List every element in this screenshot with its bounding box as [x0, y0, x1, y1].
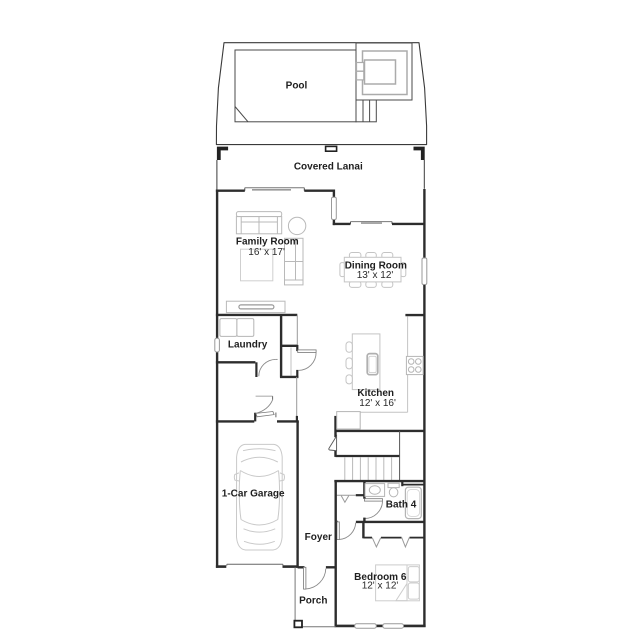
svg-text:1-Car Garage: 1-Car Garage: [222, 488, 285, 499]
svg-text:Porch: Porch: [299, 596, 327, 607]
svg-text:Bath 4: Bath 4: [386, 499, 417, 510]
svg-text:Foyer: Foyer: [305, 532, 332, 543]
svg-text:Covered Lanai: Covered Lanai: [294, 161, 363, 172]
svg-text:16' x 17': 16' x 17': [248, 247, 285, 258]
svg-text:12' x 12': 12' x 12': [362, 581, 399, 592]
svg-text:Laundry: Laundry: [228, 339, 268, 350]
svg-text:12' x 16': 12' x 16': [359, 398, 396, 409]
svg-text:Pool: Pool: [286, 81, 308, 92]
svg-text:13' x 12': 13' x 12': [357, 270, 394, 281]
